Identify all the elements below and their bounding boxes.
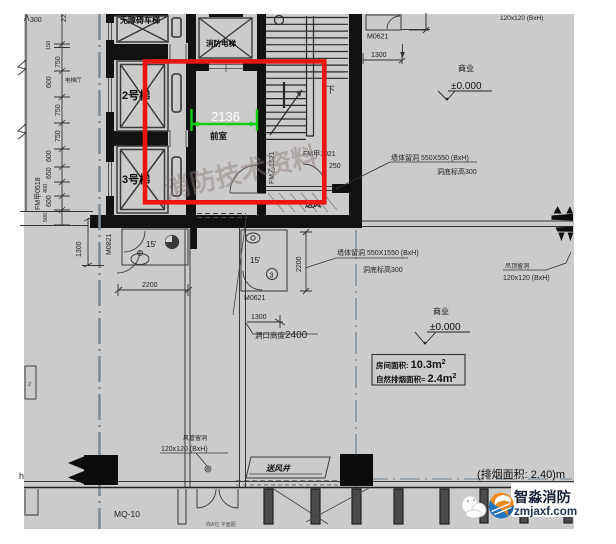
svg-text:750: 750 [55, 56, 62, 68]
svg-text:FM甲0518: FM甲0518 [34, 177, 42, 210]
svg-text:商业: 商业 [433, 306, 449, 316]
svg-text:150: 150 [46, 41, 52, 50]
svg-text:洞底标高300: 洞底标高300 [437, 167, 477, 176]
svg-text:(排烟面积: 2.40)m: (排烟面积: 2.40)m [477, 467, 565, 481]
svg-text:2200: 2200 [142, 282, 158, 289]
svg-text:zmjaxf.com: zmjaxf.com [514, 505, 577, 518]
svg-text:洞口高度2400: 洞口高度2400 [255, 330, 308, 341]
svg-text:墙体留洞 550X550 (BxH): 墙体留洞 550X550 (BxH) [391, 153, 469, 162]
svg-text:风管留洞: 风管留洞 [183, 434, 207, 442]
svg-text:1300: 1300 [371, 52, 387, 59]
svg-text:15': 15' [250, 256, 261, 265]
svg-text:650: 650 [46, 167, 53, 179]
svg-text:2136: 2136 [211, 109, 240, 124]
svg-text:消防电梯: 消防电梯 [206, 38, 236, 48]
svg-text:前室: 前室 [210, 131, 228, 141]
svg-text:120x120 (BxH): 120x120 (BxH) [500, 15, 543, 22]
svg-text:300: 300 [30, 17, 42, 24]
svg-text:1300: 1300 [251, 314, 267, 321]
svg-text:墙体留洞 550X1550 (BxH): 墙体留洞 550X1550 (BxH) [337, 248, 419, 257]
svg-text:120x120 (BxH): 120x120 (BxH) [161, 446, 208, 453]
svg-text:M0821: M0821 [106, 233, 113, 255]
svg-text:1300: 1300 [76, 241, 83, 257]
svg-text:500: 500 [43, 213, 49, 222]
svg-text:600: 600 [46, 195, 53, 207]
svg-text:400: 400 [43, 184, 49, 193]
svg-text:600: 600 [46, 150, 53, 162]
svg-text:15': 15' [146, 240, 157, 249]
svg-text:600: 600 [46, 76, 53, 88]
svg-text:吊顶留洞: 吊顶留洞 [505, 262, 529, 270]
svg-text:商业: 商业 [458, 63, 474, 73]
svg-text:自然排烟面积= 2.4m2: 自然排烟面积= 2.4m2 [376, 373, 457, 385]
svg-text:MQ-10: MQ-10 [114, 509, 140, 519]
svg-text:2200: 2200 [296, 256, 303, 272]
svg-text:商A位 平面图: 商A位 平面图 [206, 521, 236, 528]
svg-text:M0621: M0621 [367, 34, 389, 41]
svg-text:下: 下 [326, 85, 335, 95]
svg-text:120x120 (BxH): 120x120 (BxH) [503, 275, 550, 282]
svg-text:h: h [19, 471, 24, 481]
svg-text:房间面积: 10.3m2: 房间面积: 10.3m2 [376, 359, 446, 371]
svg-text:3: 3 [270, 273, 274, 280]
svg-text:750: 750 [55, 130, 62, 142]
svg-text:±0.000: ±0.000 [430, 322, 461, 333]
svg-text:750: 750 [55, 104, 62, 116]
svg-text:洞底标高300: 洞底标高300 [363, 265, 403, 274]
svg-text:250: 250 [329, 163, 341, 170]
svg-text:±0.000: ±0.000 [451, 81, 482, 92]
svg-text:智淼消防: 智淼消防 [514, 489, 571, 506]
svg-text:电梯厅: 电梯厅 [65, 76, 82, 84]
svg-text:22: 22 [61, 14, 68, 22]
svg-text:2: 2 [28, 382, 31, 388]
svg-text:无障碍车梯: 无障碍车梯 [119, 15, 160, 25]
svg-text:M0621: M0621 [244, 295, 266, 302]
svg-text:送风井: 送风井 [265, 464, 291, 473]
